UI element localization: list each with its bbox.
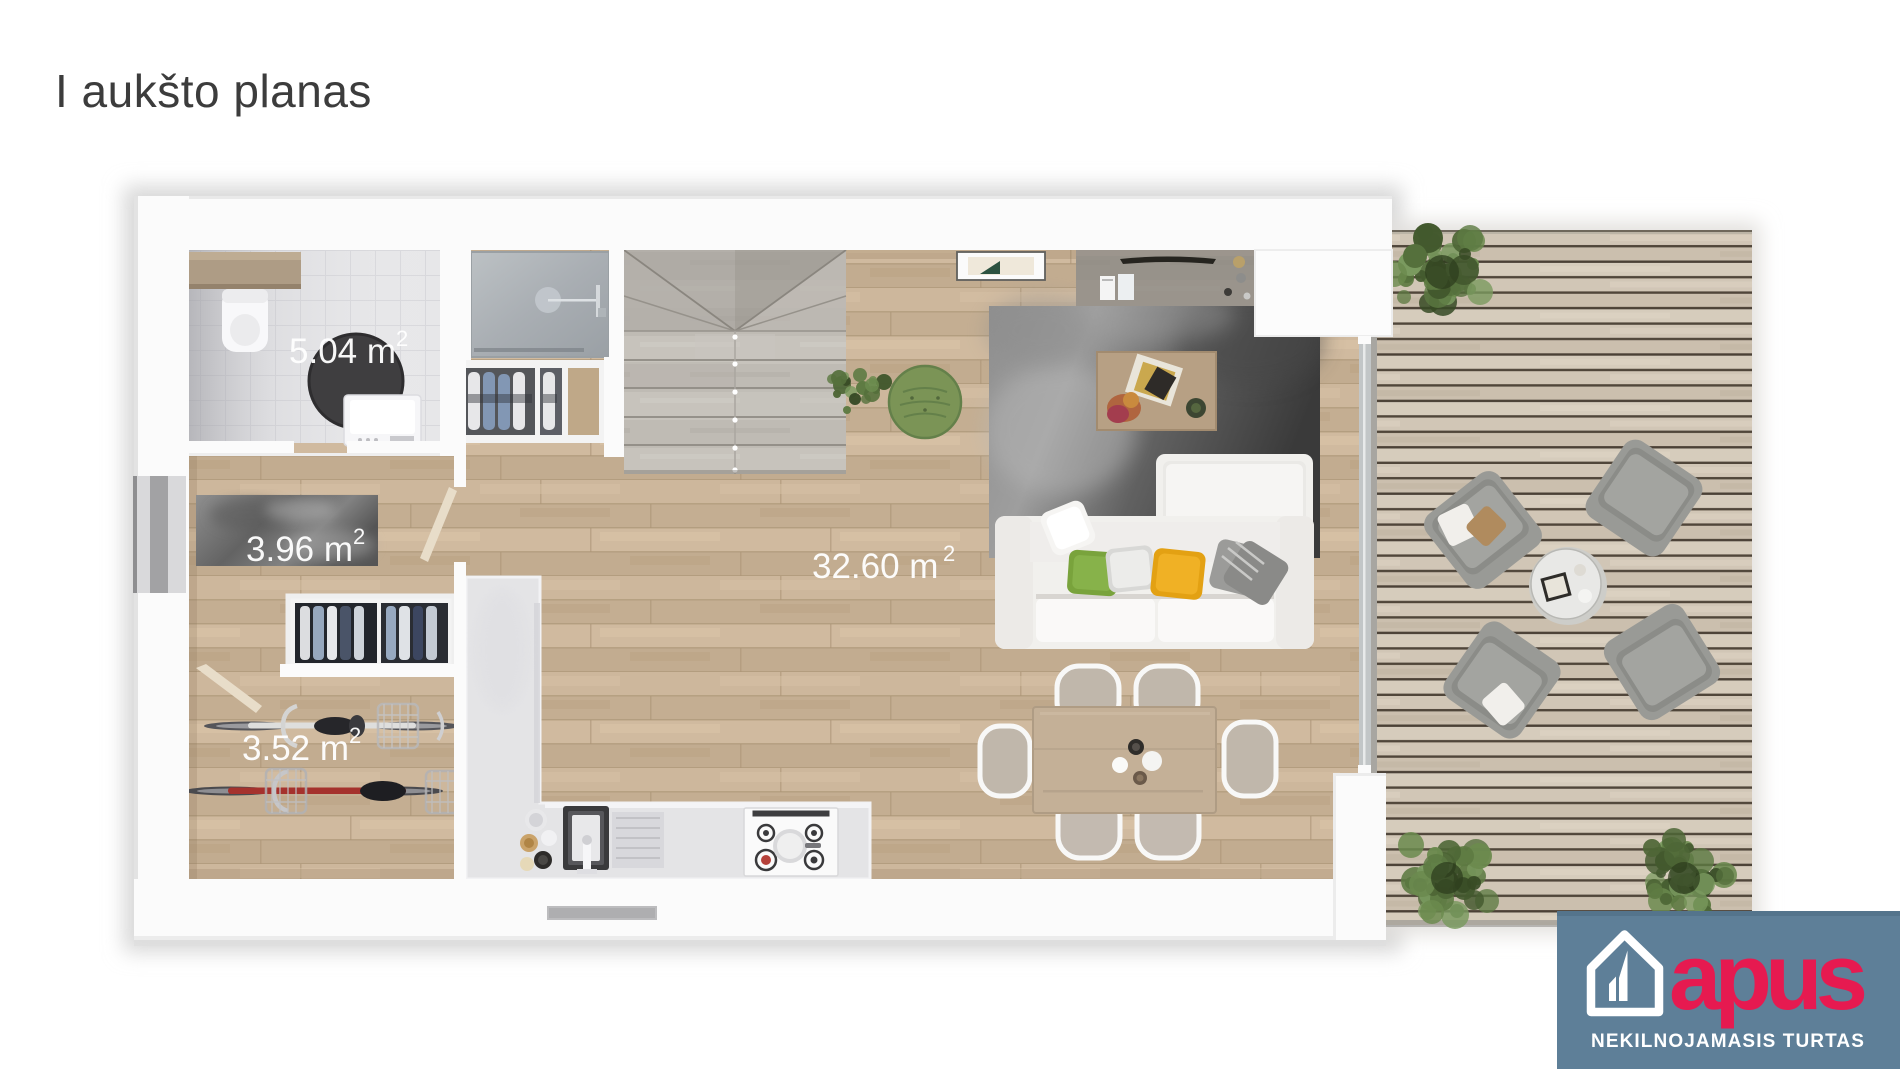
svg-text:2: 2 — [353, 524, 365, 549]
svg-text:2: 2 — [349, 723, 361, 748]
svg-text:32.60 m: 32.60 m — [812, 547, 938, 586]
svg-text:5.04 m: 5.04 m — [289, 332, 396, 371]
svg-text:2: 2 — [943, 541, 955, 566]
svg-text:3.96 m: 3.96 m — [246, 530, 353, 569]
svg-text:3.52 m: 3.52 m — [242, 729, 349, 768]
svg-text:2: 2 — [396, 326, 408, 351]
svg-text:apus: apus — [1669, 924, 1865, 1029]
svg-text:NEKILNOJAMASIS TURTAS: NEKILNOJAMASIS TURTAS — [1591, 1031, 1865, 1052]
